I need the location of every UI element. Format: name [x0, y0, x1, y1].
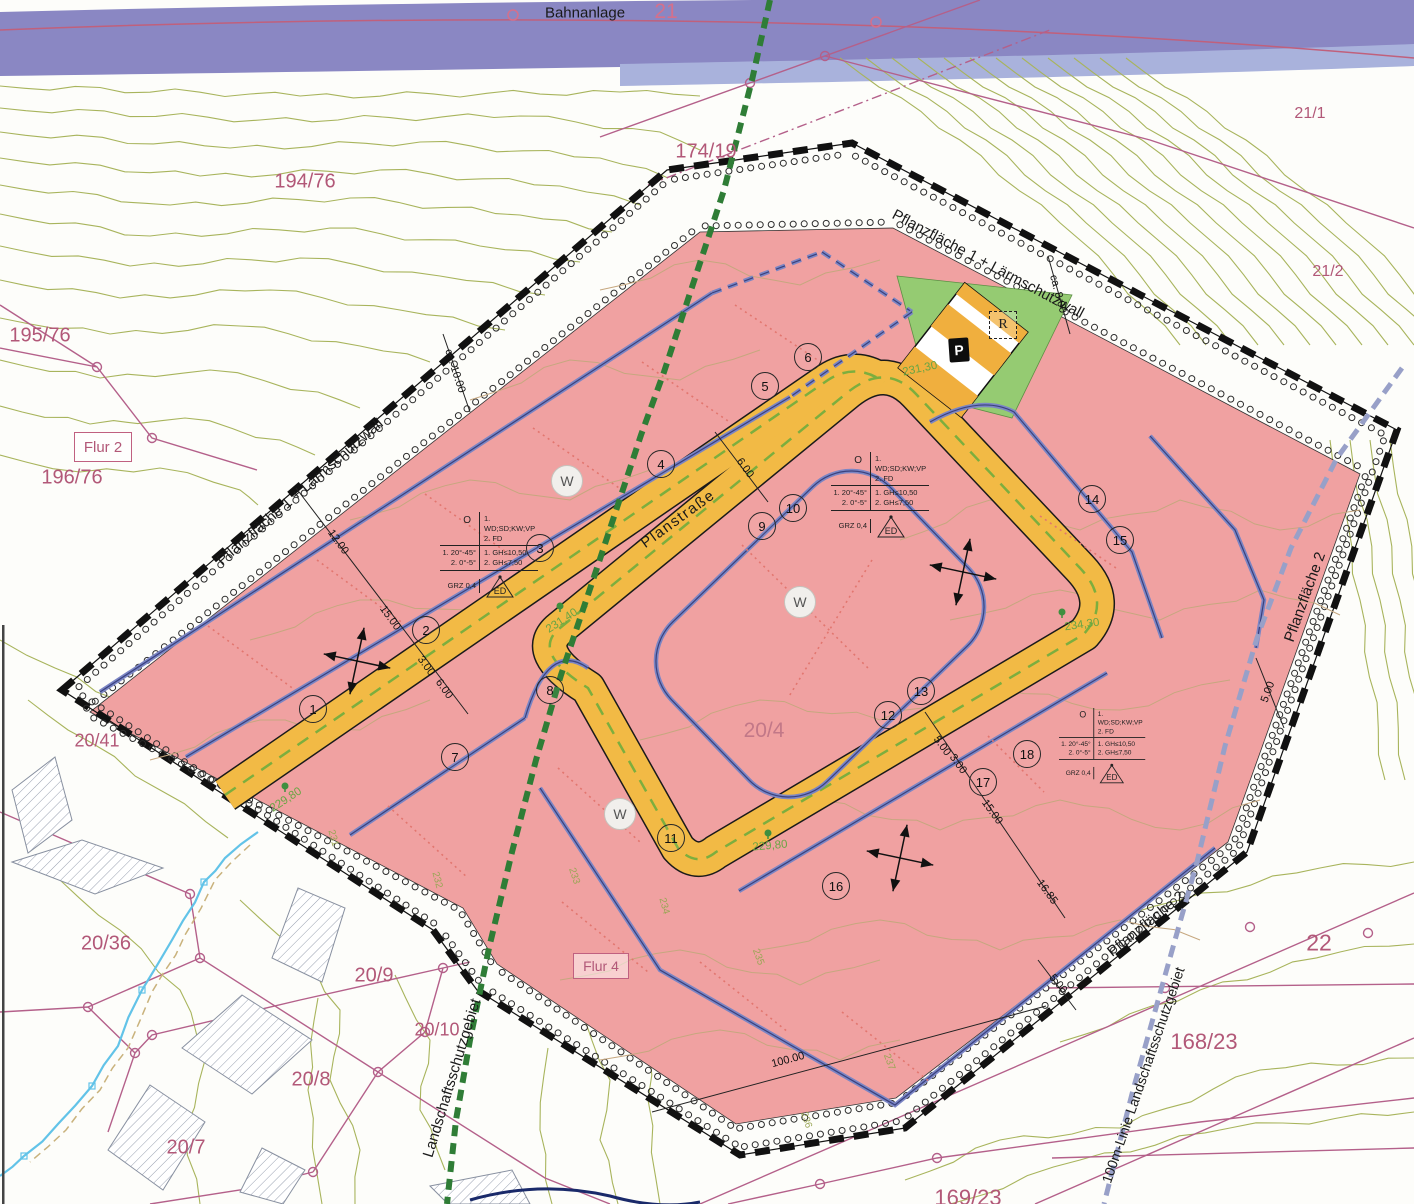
railway-label: Bahnanlage [545, 5, 625, 22]
lot-circle-11: 11 [657, 824, 685, 852]
spec-box-west: O 1. WD;SD;KW;VP2. FD 1. 20°-45°2. 0°-5°… [440, 512, 538, 602]
lot-circle-1: 1 [299, 695, 327, 723]
ed-triangle-icon: ED [484, 574, 516, 600]
parcel-20-36: 20/36 [81, 933, 131, 956]
lot-circle-16: 16 [822, 872, 850, 900]
parking-icon: P [948, 337, 970, 362]
svg-text:ED: ED [494, 586, 507, 596]
plan-graphics [0, 0, 1414, 1204]
lot-circle-13: 13 [907, 677, 935, 705]
land-use-w-marker-2: W [784, 586, 816, 618]
parcel-20-10: 20/10 [414, 1020, 459, 1041]
parcel-20-41: 20/41 [74, 731, 119, 752]
lot-circle-18: 18 [1013, 740, 1041, 768]
parcel-22: 22 [1306, 930, 1332, 957]
lot-circle-5: 5 [751, 372, 779, 400]
lot-circle-12: 12 [874, 701, 902, 729]
parcel-20-9: 20/9 [355, 965, 394, 988]
railway-parcel-number: 21 [654, 0, 677, 24]
spec-box-east: O 1. WD;SD;KW;VP2. FD 1. 20°-45°2. 0°-5°… [1059, 708, 1145, 787]
parcel-174-19: 174/19 [675, 141, 736, 164]
lot-circle-7: 7 [441, 743, 469, 771]
parcel-169-23: 169/23 [934, 1185, 1001, 1204]
land-use-w-marker-1: W [551, 465, 583, 497]
plan-area-boundary [62, 143, 1397, 1155]
lot-circle-4: 4 [647, 450, 675, 478]
lot-circle-9: 9 [748, 512, 776, 540]
lot-circle-6: 6 [794, 343, 822, 371]
svg-text:ED: ED [885, 526, 898, 536]
plan-canvas[interactable]: Bahnanlage 21 194/76 195/76 196/76 174/1… [0, 0, 1414, 1204]
scan-edge [2, 625, 5, 1204]
lot-circle-14: 14 [1078, 485, 1106, 513]
lot-circle-15: 15 [1106, 526, 1134, 554]
svg-text:ED: ED [1106, 773, 1117, 782]
parcel-20-7: 20/7 [167, 1137, 206, 1160]
parcel-196-76: 196/76 [41, 467, 102, 490]
railway-band [0, 0, 1414, 86]
parcel-20-4: 20/4 [744, 719, 785, 743]
flur-4-label: Flur 4 [583, 958, 619, 974]
parcel-21-1: 21/1 [1294, 105, 1325, 123]
lot-circle-2: 2 [412, 616, 440, 644]
parcel-21-2: 21/2 [1312, 263, 1343, 281]
flur-4-box: Flur 4 [573, 953, 629, 979]
lot-circle-8: 8 [536, 676, 564, 704]
flur-2-box: Flur 2 [74, 432, 132, 462]
parcel-194-76: 194/76 [274, 171, 335, 194]
spec-box-center: O 1. WD;SD;KW;VP2. FD 1. 20°-45°2. 0°-5°… [831, 452, 929, 542]
parcel-195-76: 195/76 [9, 325, 70, 348]
parcel-20-8: 20/8 [292, 1069, 331, 1092]
parcel-168-23: 168/23 [1170, 1029, 1237, 1055]
ed-triangle-icon: ED [875, 514, 907, 540]
r-area-marker: R [989, 311, 1017, 339]
land-use-w-marker-3: W [604, 798, 636, 830]
ed-triangle-icon: ED [1098, 762, 1126, 785]
lot-circle-17: 17 [969, 768, 997, 796]
lot-circle-10: 10 [779, 494, 807, 522]
flur-2-label: Flur 2 [84, 439, 122, 456]
